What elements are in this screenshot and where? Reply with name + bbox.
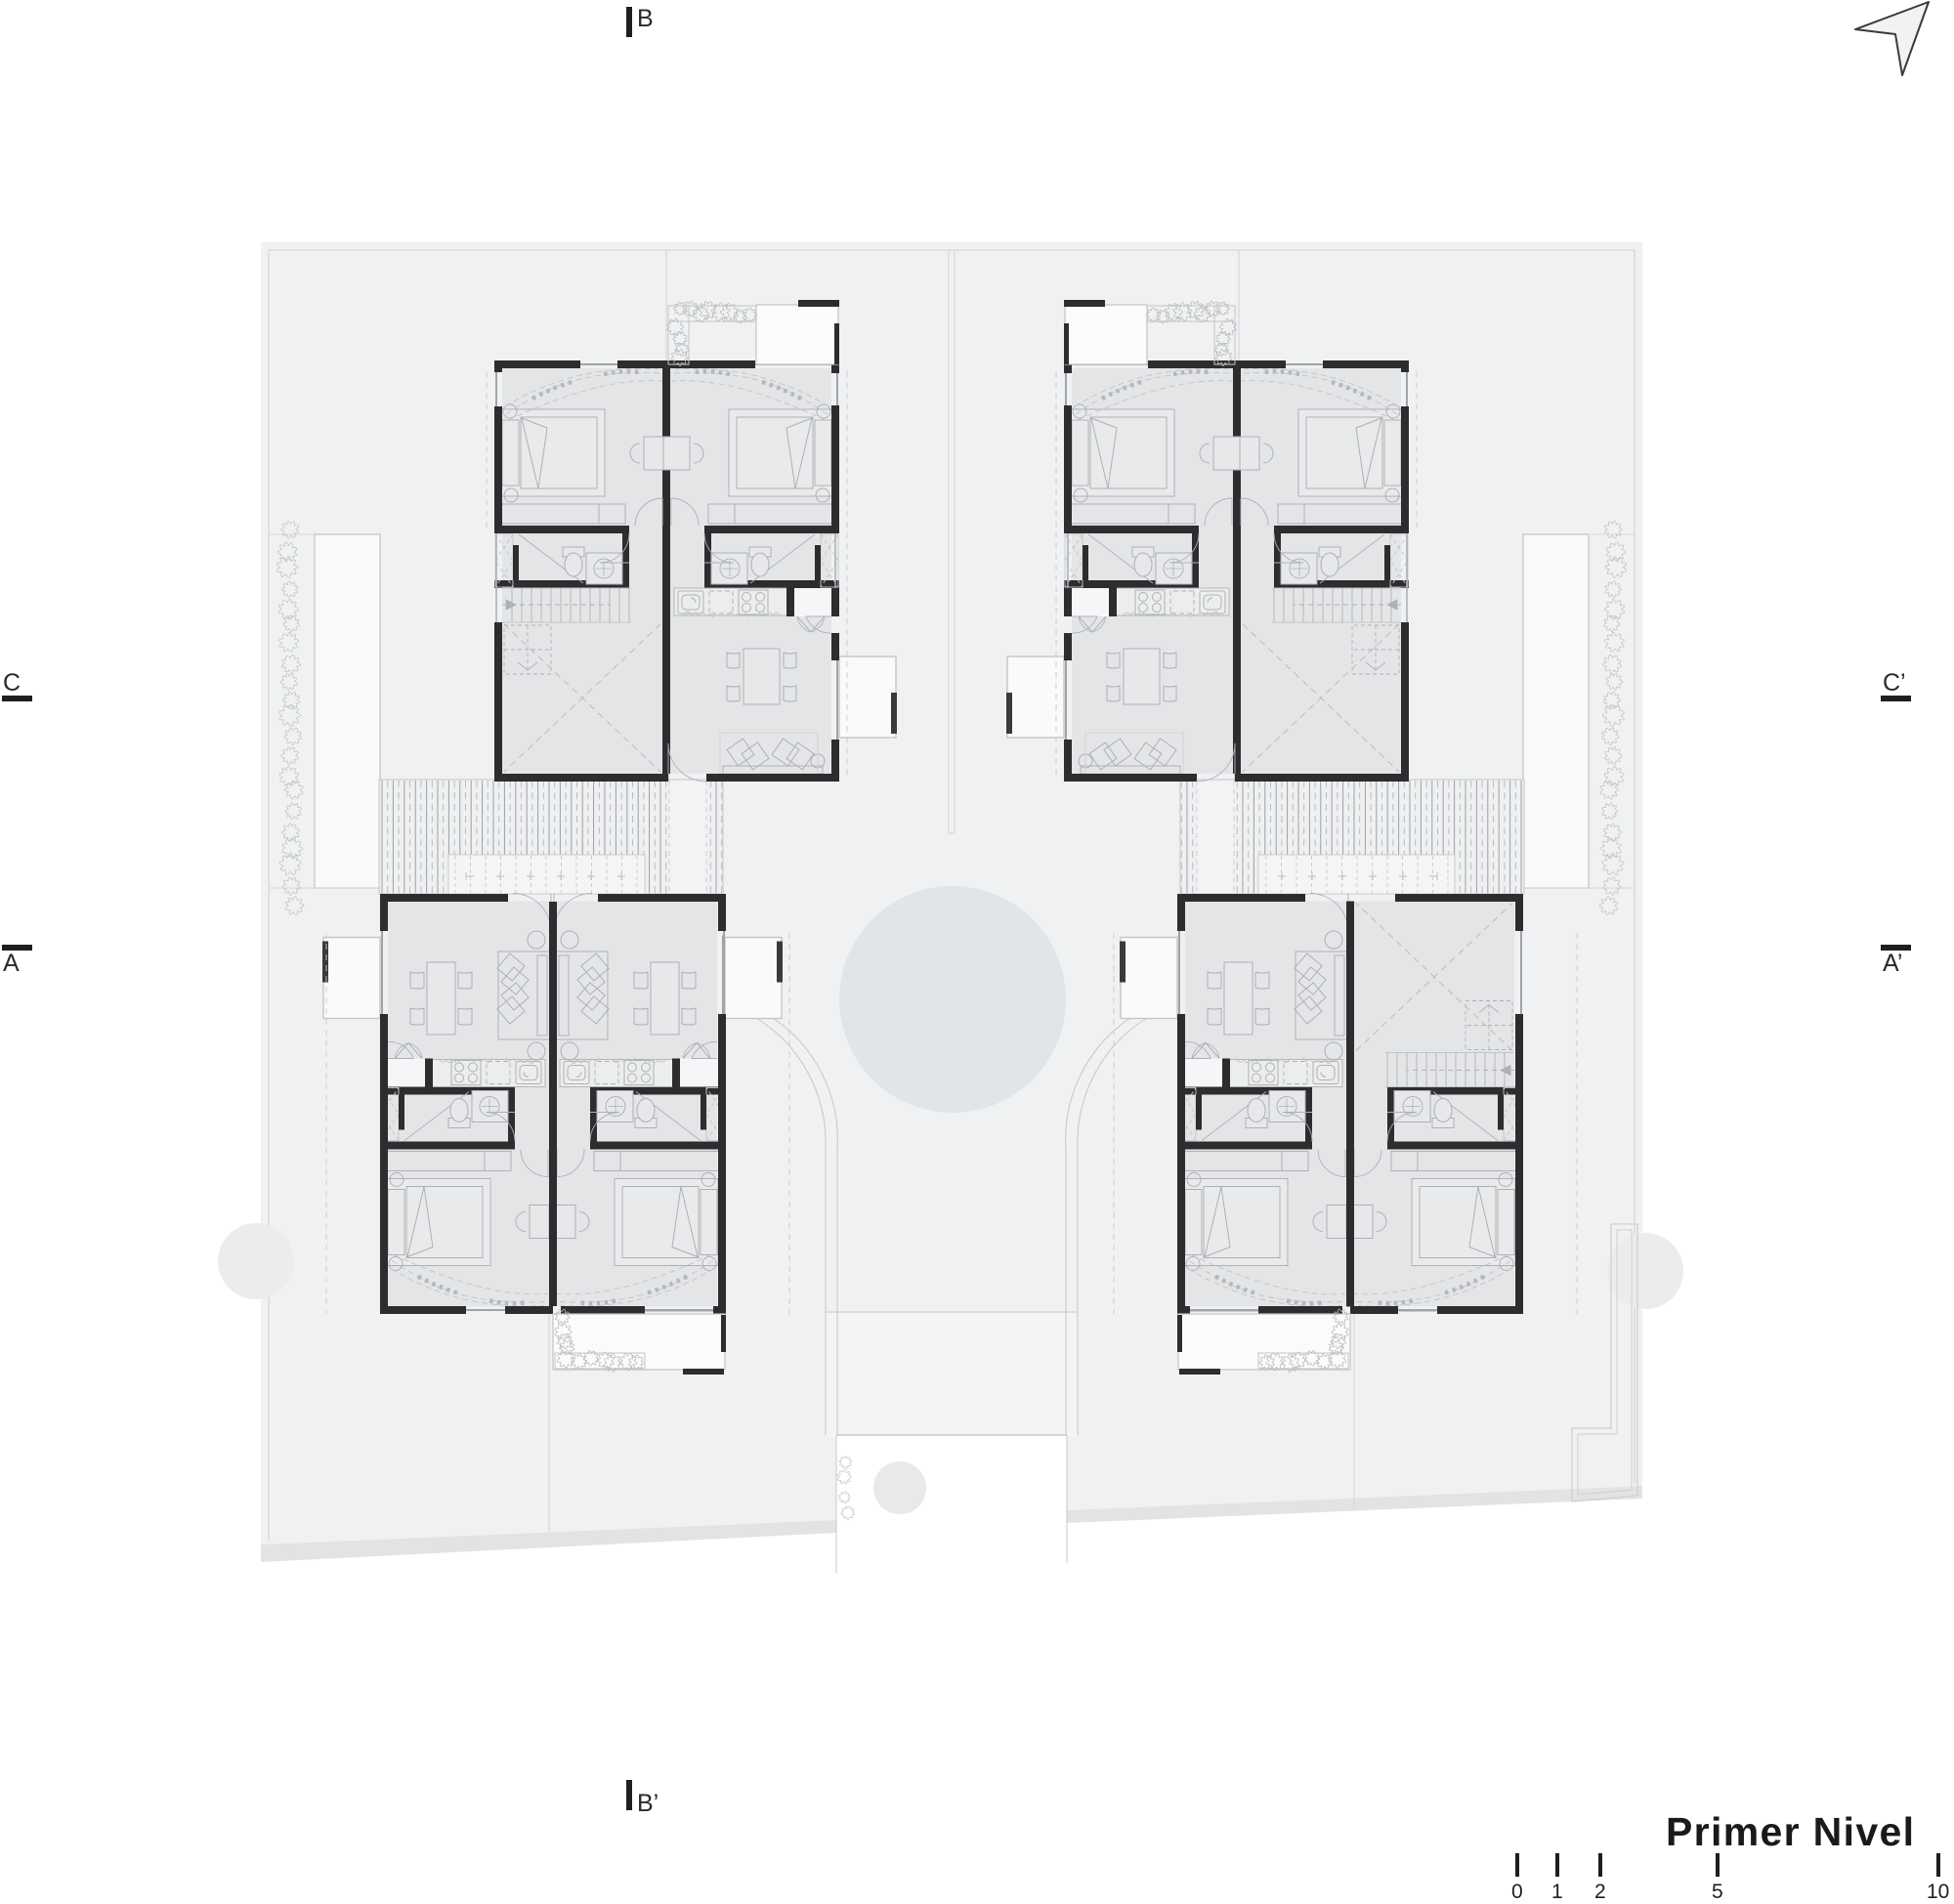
svg-text:B: B — [637, 5, 654, 32]
svg-text:5: 5 — [1712, 1881, 1723, 1903]
svg-text:1: 1 — [1551, 1881, 1563, 1903]
svg-text:Primer Nivel: Primer Nivel — [1666, 1809, 1915, 1854]
svg-text:A’: A’ — [1883, 950, 1902, 977]
svg-text:A: A — [3, 950, 20, 977]
svg-text:0: 0 — [1511, 1881, 1523, 1903]
svg-text:10: 10 — [1927, 1881, 1949, 1903]
svg-text:C’: C’ — [1883, 669, 1906, 697]
svg-text:2: 2 — [1594, 1881, 1606, 1903]
svg-text:B’: B’ — [637, 1790, 658, 1817]
svg-text:C: C — [3, 669, 21, 697]
